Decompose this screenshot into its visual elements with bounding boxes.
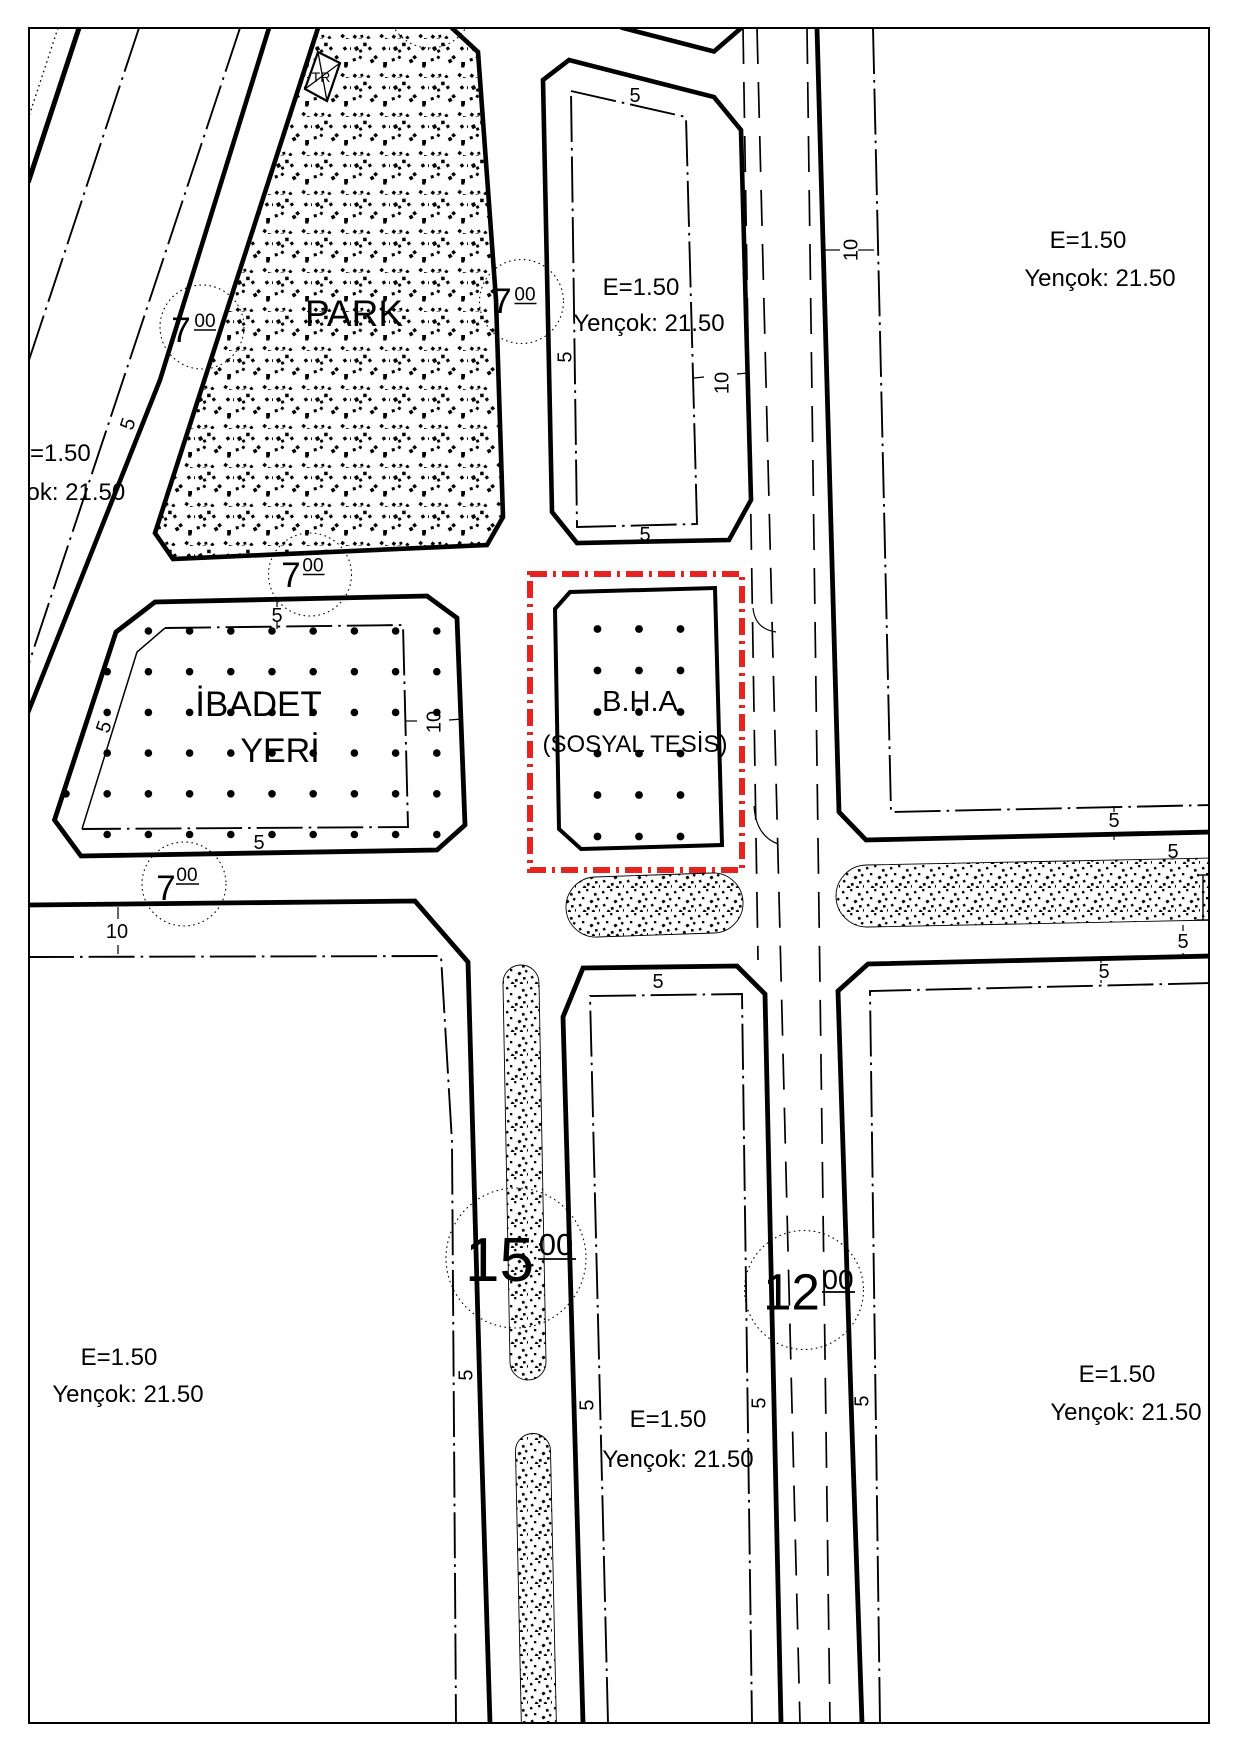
svg-text:İBADET: İBADET — [195, 685, 321, 724]
svg-text:5: 5 — [652, 971, 663, 993]
svg-text:7: 7 — [492, 282, 511, 321]
svg-text:7: 7 — [281, 556, 300, 595]
svg-text:10: 10 — [712, 372, 734, 394]
svg-text:5: 5 — [1177, 931, 1188, 953]
svg-text:Yençok: 21.50: Yençok: 21.50 — [52, 1381, 203, 1408]
svg-text:5: 5 — [456, 1369, 478, 1380]
svg-text:B.H.A: B.H.A — [602, 686, 678, 718]
svg-text:Yençok: 21.50: Yençok: 21.50 — [573, 310, 724, 337]
svg-text:E=1.50: E=1.50 — [603, 274, 680, 301]
svg-text:Yençok: 21.50: Yençok: 21.50 — [1024, 265, 1175, 292]
svg-text:Yençok: 21.50: Yençok: 21.50 — [1050, 1399, 1201, 1426]
svg-text:5: 5 — [629, 85, 640, 107]
svg-text:E=1.50: E=1.50 — [1079, 1361, 1156, 1388]
svg-text:5: 5 — [577, 1399, 599, 1410]
svg-text:00: 00 — [514, 285, 535, 306]
svg-text:5: 5 — [852, 1395, 874, 1406]
svg-text:00: 00 — [822, 1264, 853, 1295]
svg-text:7: 7 — [171, 311, 190, 350]
svg-text:5: 5 — [1108, 810, 1119, 832]
svg-text:00: 00 — [194, 311, 215, 332]
svg-text:12: 12 — [763, 1264, 820, 1321]
svg-text:PARK: PARK — [305, 293, 403, 334]
svg-text:5: 5 — [555, 351, 577, 362]
svg-text:5: 5 — [253, 832, 264, 854]
svg-text:5: 5 — [1098, 961, 1109, 983]
svg-text:00: 00 — [176, 865, 197, 886]
svg-text:00: 00 — [302, 556, 323, 577]
svg-text:15: 15 — [465, 1226, 534, 1295]
svg-text:(SOSYAL TESİS): (SOSYAL TESİS) — [543, 731, 728, 758]
svg-text:00: 00 — [539, 1227, 573, 1262]
svg-text:10: 10 — [106, 921, 128, 943]
svg-text:Yençok: 21.50: Yençok: 21.50 — [602, 1446, 753, 1473]
svg-text:5: 5 — [1167, 841, 1178, 863]
svg-text:E=1.50: E=1.50 — [630, 1406, 707, 1433]
svg-text:TR: TR — [312, 69, 331, 85]
svg-text:10: 10 — [424, 711, 446, 733]
svg-text:5: 5 — [749, 1397, 771, 1408]
svg-text:E=1.50: E=1.50 — [1050, 227, 1127, 254]
svg-text:E=1.50: E=1.50 — [81, 1344, 158, 1371]
svg-text:YERİ: YERİ — [240, 732, 319, 770]
svg-text:5: 5 — [639, 524, 650, 546]
